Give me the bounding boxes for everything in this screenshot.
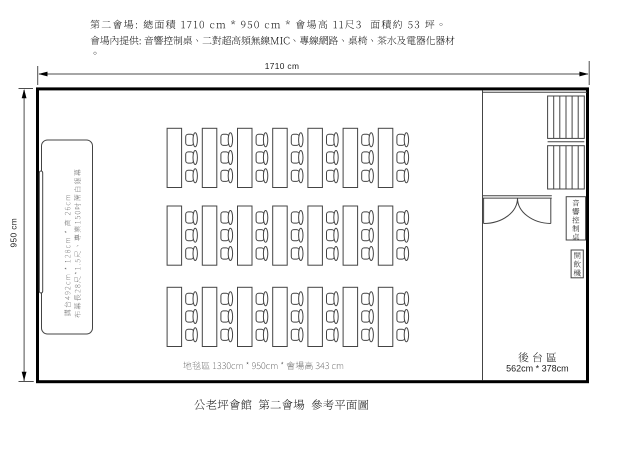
svg-text:950 cm: 950 cm	[9, 218, 19, 248]
svg-text:562cm * 378cm: 562cm * 378cm	[506, 364, 569, 374]
svg-text:1710 cm: 1710 cm	[265, 61, 300, 71]
